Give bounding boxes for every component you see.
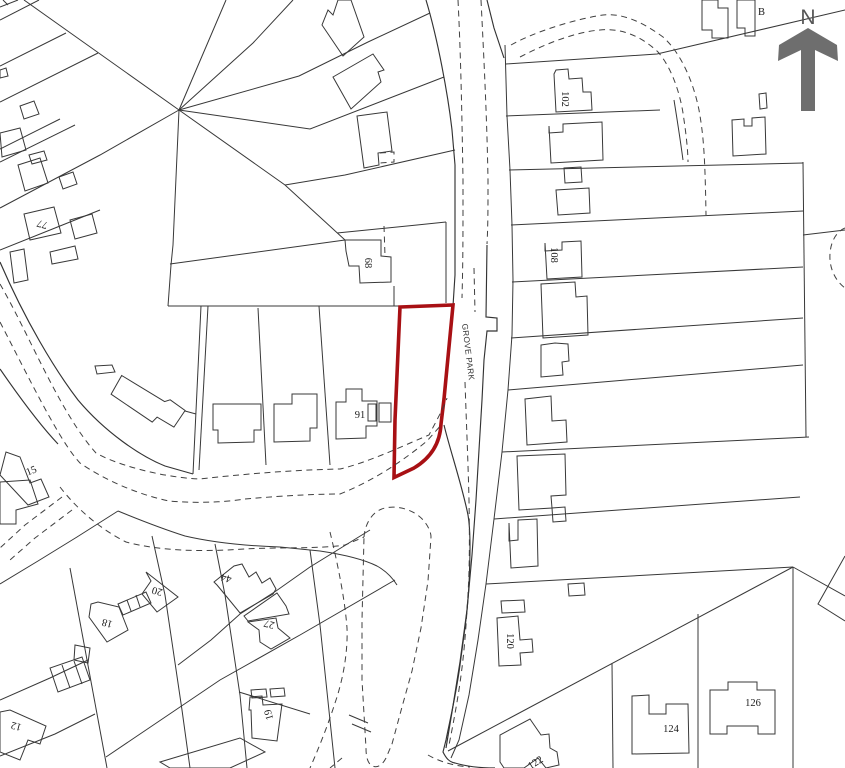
- svg-text:124: 124: [663, 724, 680, 735]
- svg-text:126: 126: [745, 698, 761, 709]
- svg-text:120: 120: [504, 633, 515, 649]
- svg-text:B: B: [758, 7, 765, 18]
- svg-text:91: 91: [355, 410, 366, 421]
- svg-text:68: 68: [362, 258, 373, 269]
- svg-text:102: 102: [559, 91, 570, 107]
- svg-text:N: N: [800, 6, 815, 29]
- svg-text:108: 108: [548, 247, 559, 263]
